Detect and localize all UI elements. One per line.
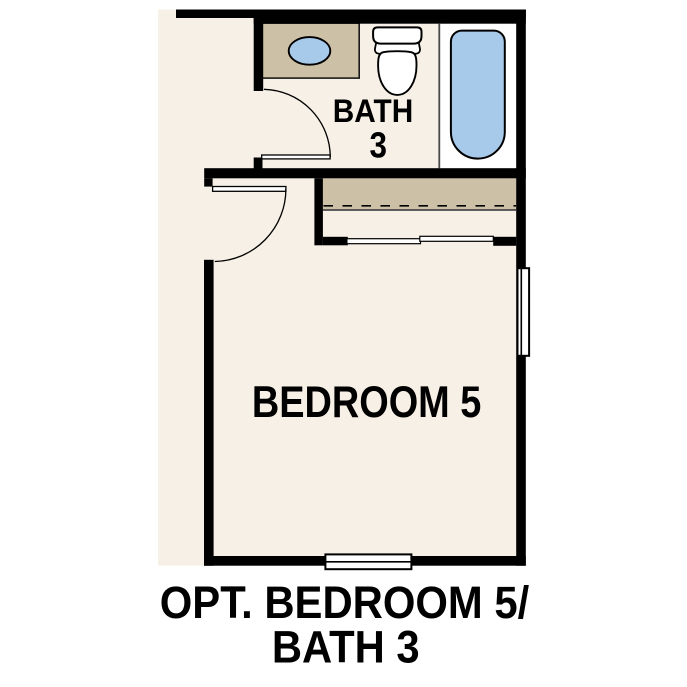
svg-text:BATH 3: BATH 3: [272, 622, 420, 673]
svg-text:3: 3: [369, 125, 386, 165]
svg-text:BEDROOM 5: BEDROOM 5: [252, 377, 481, 426]
svg-text:BATH: BATH: [333, 93, 413, 129]
svg-text:OPT. BEDROOM 5/: OPT. BEDROOM 5/: [160, 577, 529, 628]
